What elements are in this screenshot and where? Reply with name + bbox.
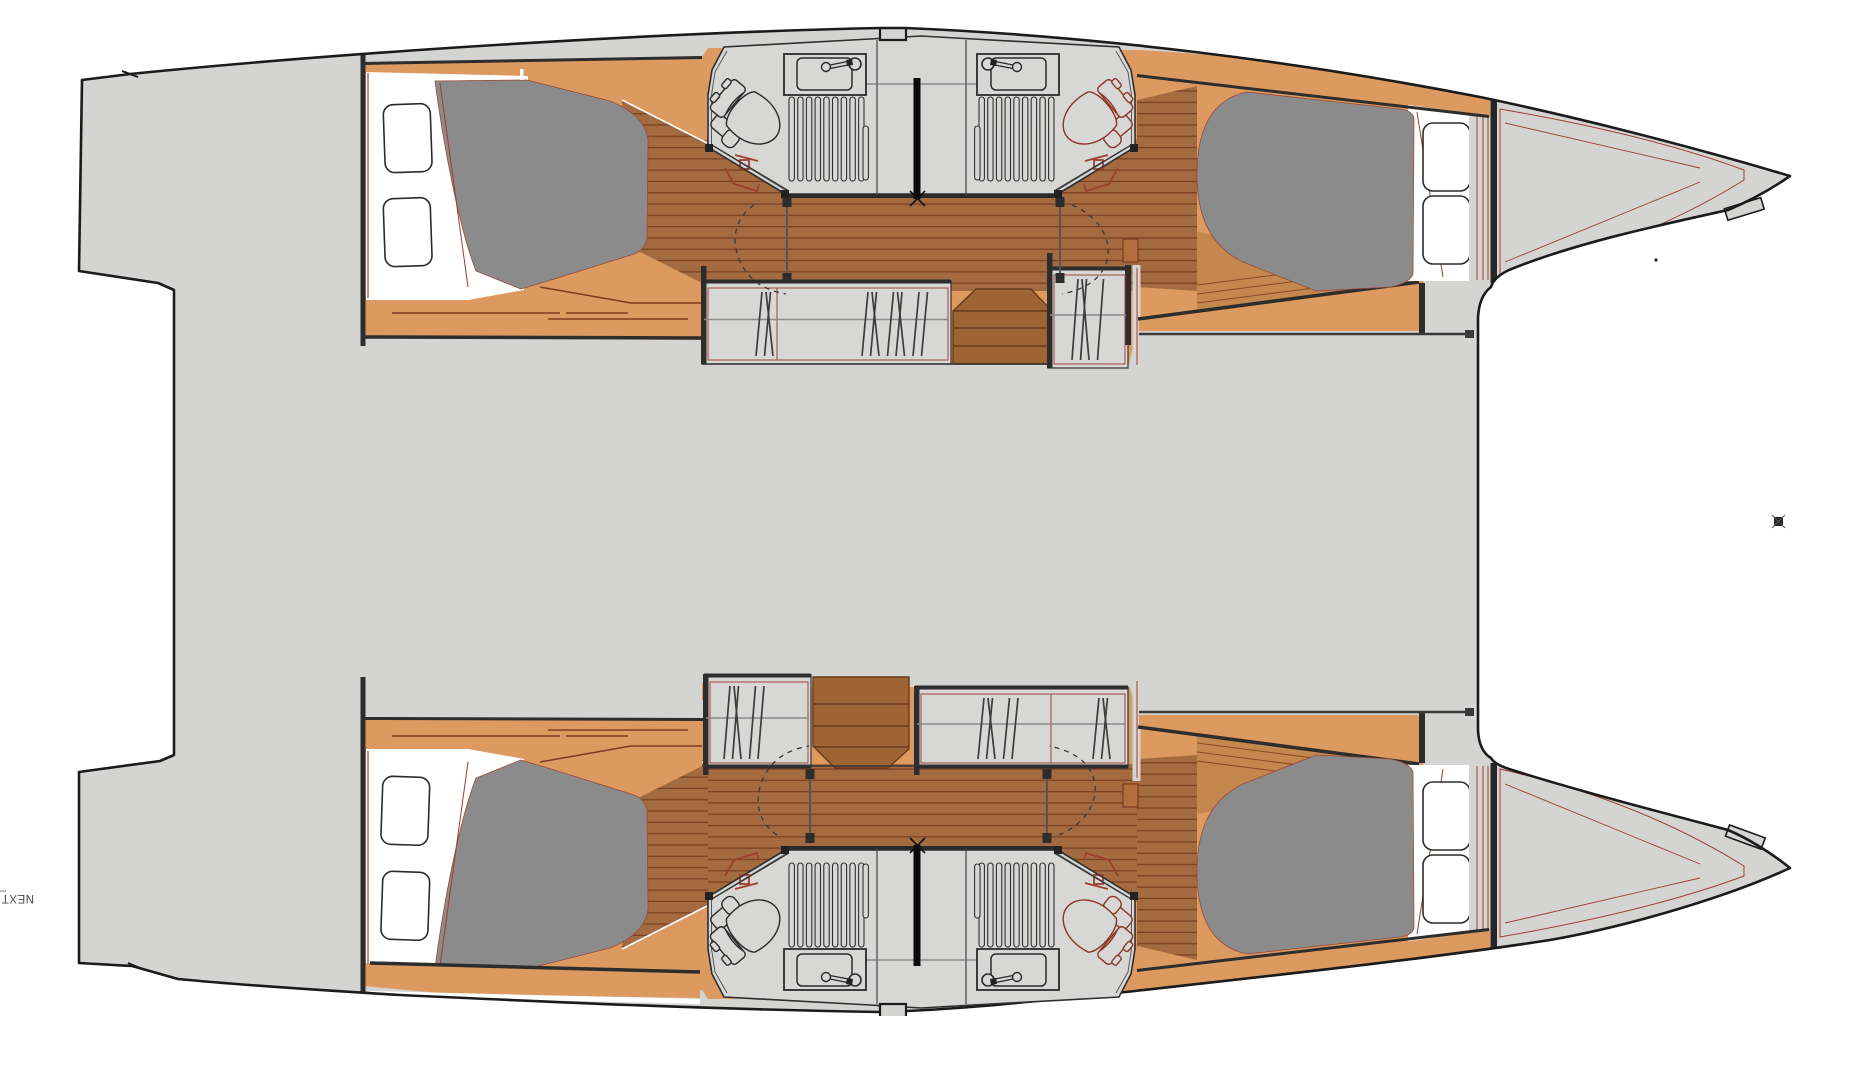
svg-text:NEXT: NEXT [1, 892, 34, 904]
